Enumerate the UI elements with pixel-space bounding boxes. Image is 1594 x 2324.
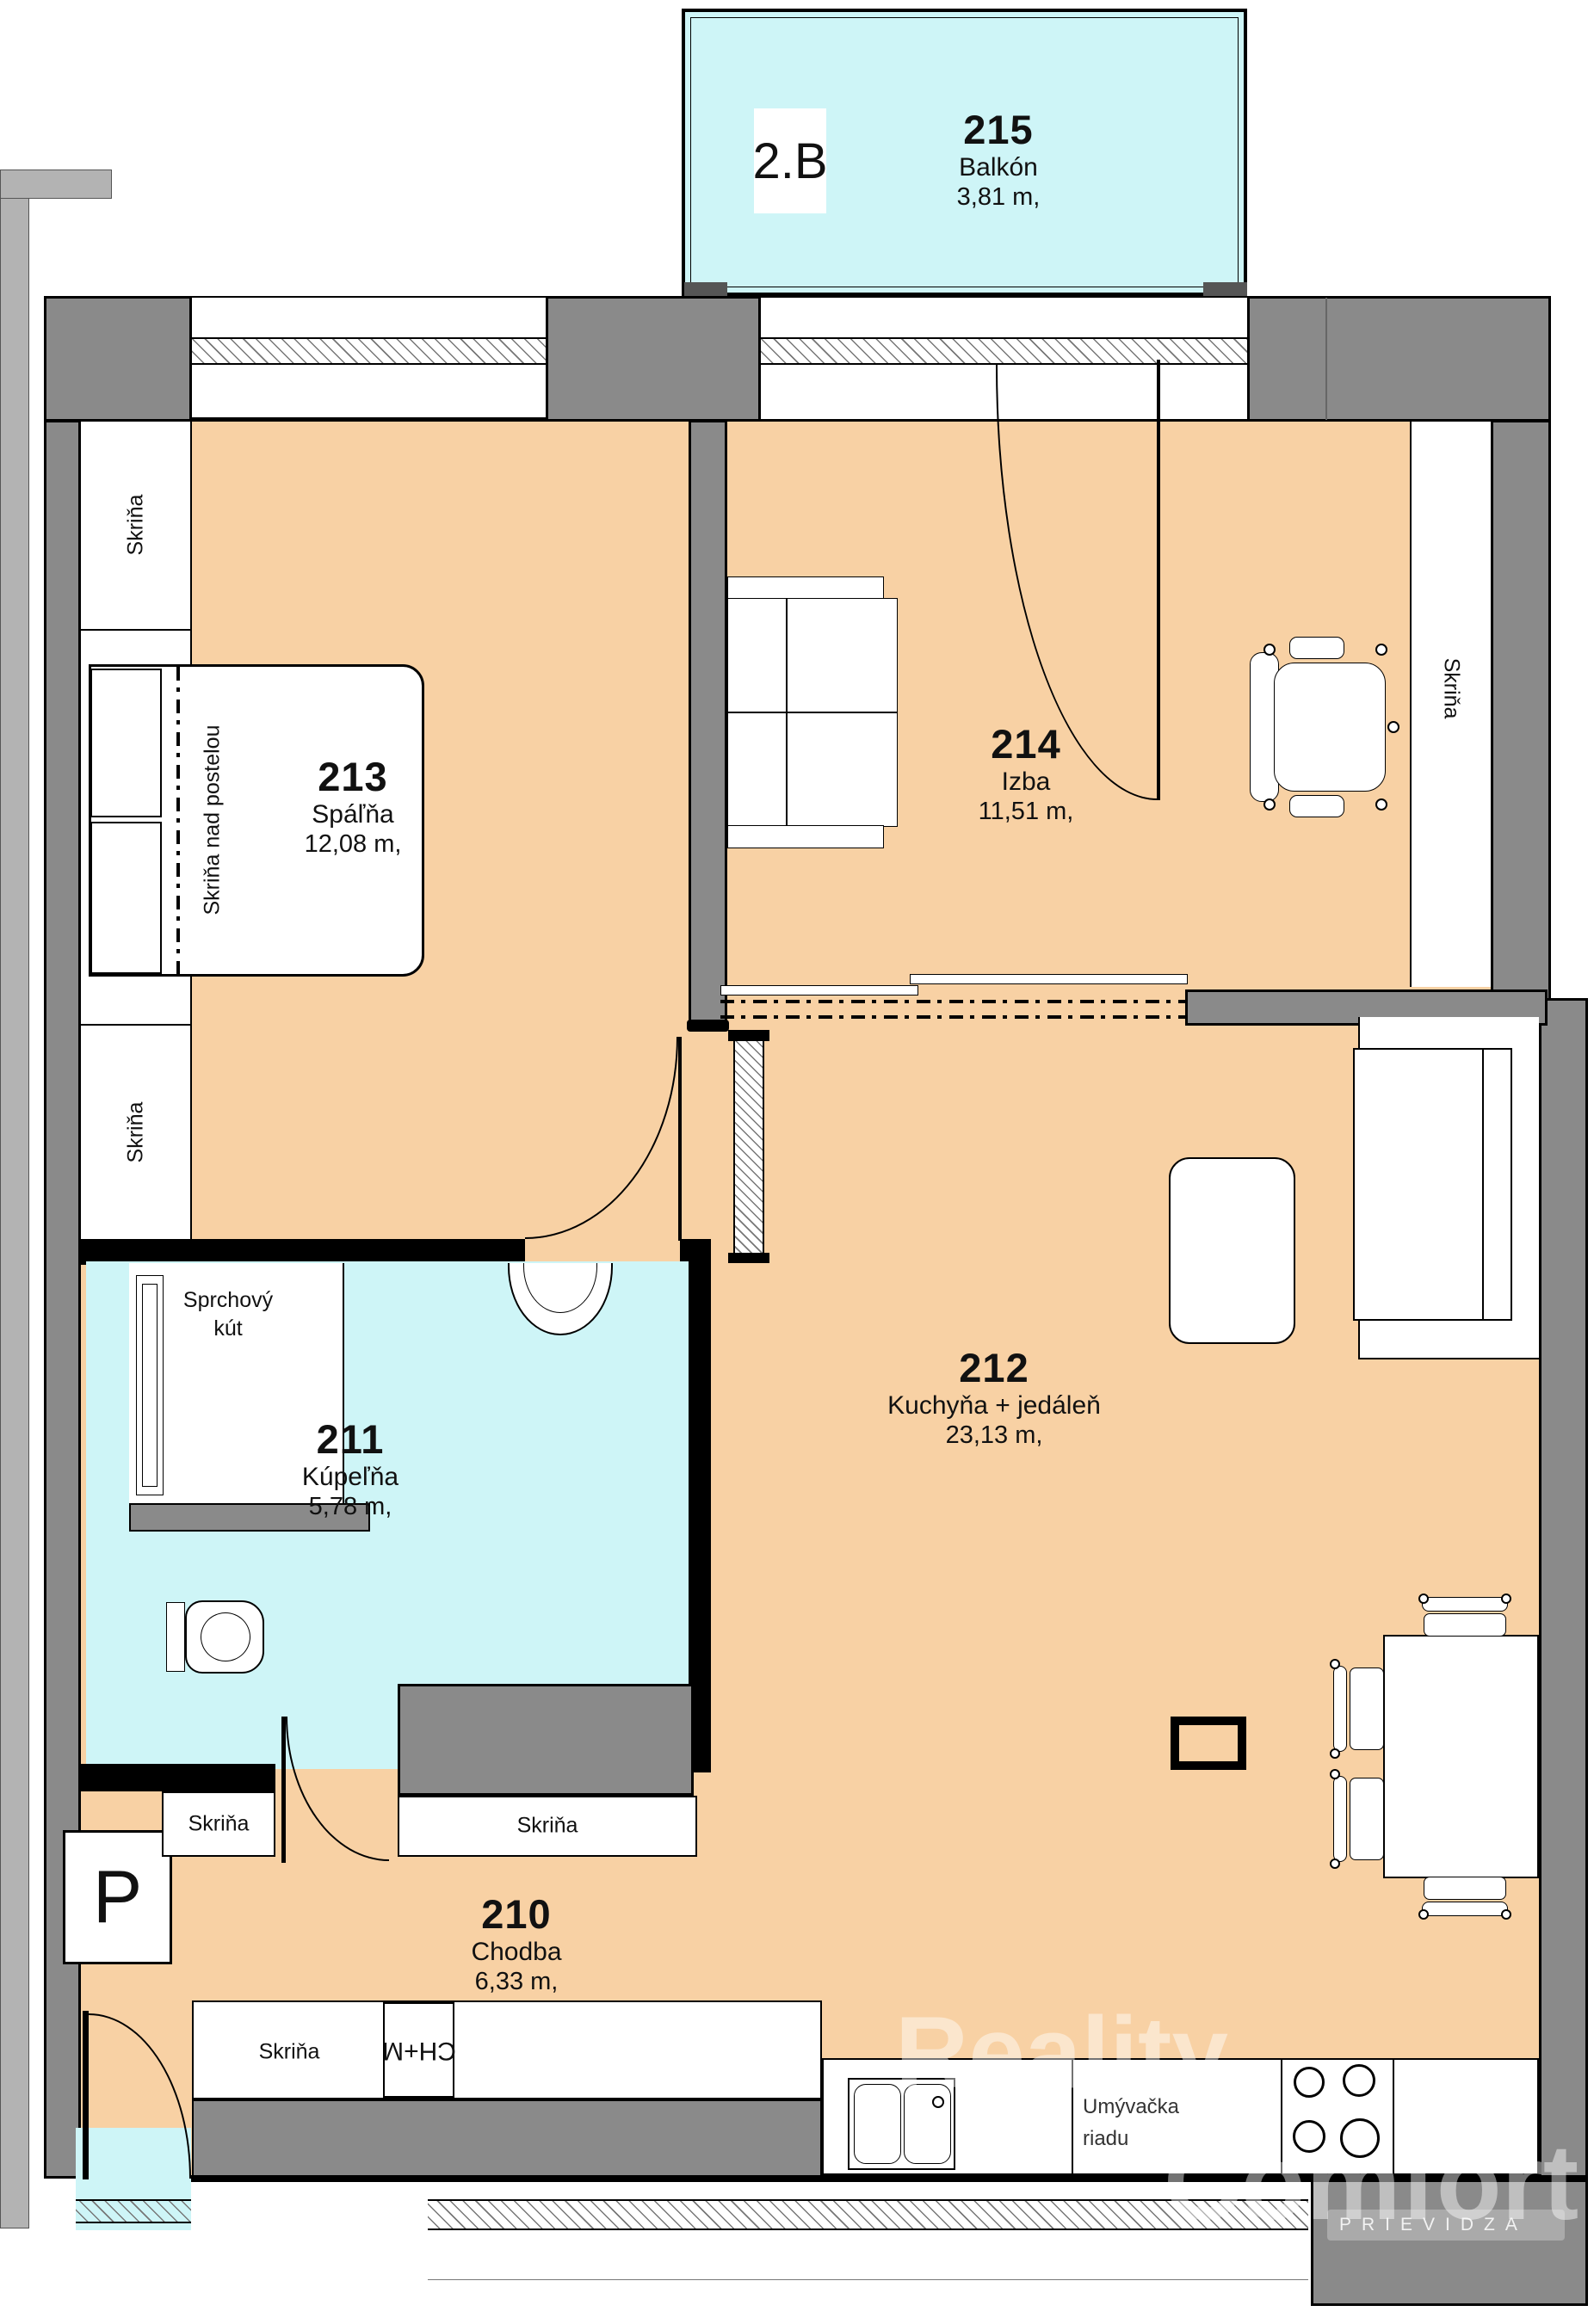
wall-block-bath-corner [398,1684,694,1796]
unit-label-box: 2.B [754,108,826,213]
chair-bottom-knob-r [1501,1909,1511,1920]
sliding-door-panel-2 [910,974,1188,984]
hall-counter-wardrobe-label: Skriňa [259,2040,320,2065]
wall-top-right-joint [1325,298,1327,420]
shower-tray-inner [142,1284,158,1487]
room-number-kuchyna: 212 [887,1347,1101,1389]
office-chair-seat [1274,663,1386,792]
kitchen-counter-line-3 [1393,2059,1394,2174]
bed-headboard-cabinet-1 [90,669,162,817]
unit-label: 2.B [752,133,827,190]
room-area-kuchyna: 23,13 m, [887,1422,1101,1448]
sliding-door-panel-1 [720,985,918,996]
room-label-izba: 214 Izba 11,51 m, [979,723,1074,824]
bedroom-door-leaf [678,1037,682,1241]
neighbour-wall-left [0,170,29,2228]
chair-bottom-seat [1424,1877,1506,1900]
stove-burner-2 [1343,2064,1375,2097]
hall-closet-left-label: Skriňa [188,1812,250,1837]
shower-label: Sprchový kút [164,1286,293,1342]
glazed-sidelight-cap-bottom [728,1253,769,1263]
room-name-balkon: Balkón [957,154,1041,182]
sofa212-backrest-line [1482,1050,1484,1319]
room-area-balkon: 3,81 m, [957,184,1041,210]
glazed-sidelight [733,1041,764,1256]
chair-top-back [1422,1597,1508,1612]
wall-right-upper [1491,420,1551,1024]
room-name-kuchyna: Kuchyňa + jedáleň [887,1392,1101,1420]
toilet-tank [166,1602,185,1672]
wall-bathroom-bottom-left [81,1764,275,1791]
room-area-izba: 11,51 m, [979,798,1074,824]
shower-label-line2: kút [164,1315,293,1343]
window-balcony-glass [761,337,1247,365]
room-number-spalna: 213 [305,755,402,798]
chair-left1-back [1333,1666,1347,1752]
room-name-chodba: Chodba [471,1939,561,1966]
sofa214-armrest-bottom [727,825,884,848]
toilet-bowl-inner [201,1612,250,1661]
chair-bottom-knob-l [1418,1909,1429,1920]
glazed-sidelight-cap-top [728,1030,769,1041]
chair-left2-knob-t [1330,1769,1340,1779]
stove-burner-4 [1340,2118,1380,2158]
chair-left2-seat [1350,1778,1384,1860]
bed-center-line [176,667,180,974]
room-name-kupelna: Kúpeľňa [302,1464,398,1491]
fridge-freezer-label: CH+M [382,2036,456,2065]
office-chair-armrest-bottom [1289,795,1344,817]
kitchen-sink-faucet [932,2096,944,2108]
chair-left1-seat [1350,1667,1384,1750]
office-chair-wheel-4 [1375,798,1387,811]
dishwasher-label-line2: riadu [1083,2123,1220,2154]
wall-divider-cap [687,1020,729,1032]
wall-right-lower [1539,998,1588,2179]
chair-left2-knob-b [1330,1859,1340,1869]
kitchen-counter-line-2 [1281,2059,1282,2174]
dining-table [1383,1635,1539,1878]
wall-divider-213-214 [689,420,727,1030]
office-chair-wheel-5 [1387,721,1399,733]
floor-shaft [1171,1717,1246,1770]
room-label-kuchyna: 212 Kuchyňa + jedáleň 23,13 m, [887,1347,1101,1448]
chair-top-knob-r [1501,1594,1511,1604]
window-bedroom-glass [192,337,546,365]
chair-top-seat [1424,1613,1506,1637]
bedroom-closet-line-top [81,629,192,631]
hall-closet-right-label: Skriňa [517,1814,578,1839]
room-area-spalna: 12,08 m, [305,831,402,857]
chair-left2-back [1333,1776,1347,1862]
bathroom-door-leaf [281,1717,286,1863]
wall-top-pier [546,296,761,422]
wall-top-right-corner [1247,296,1551,422]
room-number-chodba: 210 [471,1893,561,1935]
sofa214-seat-line-h [728,712,897,713]
entrance-threshold-hatch [76,2199,191,2223]
coffee-table [1169,1157,1295,1344]
office-chair-armrest-top [1289,637,1344,659]
room-label-chodba: 210 Chodba 6,33 m, [471,1893,561,1994]
room214-closet-label: Skriňa [1439,658,1464,719]
shower-label-line1: Sprchový [164,1286,293,1315]
room-label-spalna: 213 Spáľňa 12,08 m, [305,755,402,857]
wall-bottom-right-block [1311,2177,1588,2306]
bed-headboard-cabinet-2 [90,822,162,974]
kitchen-sink-basin-left [854,2084,901,2164]
floor-plan: 2.B 215 Balkón 3,81 m, Skriňa Skriňa Skr… [0,0,1594,2324]
office-chair-wheel-3 [1263,798,1276,811]
office-chair-wheel-2 [1375,644,1387,656]
sliding-door-track-2 [720,1015,1188,1019]
stove-burner-3 [1293,2120,1325,2153]
dishwasher-label: Umývačka riadu [1083,2091,1220,2154]
entrance-door-leaf [83,2011,89,2179]
bedroom-closet-top-label: Skriňa [124,495,149,556]
room-number-balkon: 215 [957,108,1041,151]
room-number-kupelna: 211 [302,1418,398,1460]
room-name-izba: Izba [979,768,1074,796]
kitchen-counter-line-1 [1072,2059,1073,2174]
bedroom-closet-line-bottom [81,1024,192,1026]
wall-bottom-line [191,2175,1588,2182]
room-name-spalna: Spáľňa [305,801,402,829]
room-area-kupelna: 5,78 m, [302,1494,398,1520]
wardrobe-over-bed-label: Skriňa nad postelou [201,725,226,915]
window-bottom-band [428,2182,1308,2280]
room-label-kupelna: 211 Kúpeľňa 5,78 m, [302,1418,398,1520]
wall-top-left-corner [44,296,192,422]
chair-top-knob-l [1418,1594,1429,1604]
sliding-door-track-1 [720,1000,1188,1003]
wall-under-hall-counter [192,2099,822,2177]
sofa214-armrest-top [727,576,884,600]
kitchen-sink-basin-right [904,2084,951,2164]
chair-bottom-back [1422,1902,1508,1916]
room-label-balkon: 215 Balkón 3,81 m, [957,108,1041,210]
stove-burner-1 [1294,2067,1325,2098]
chair-left1-knob-t [1330,1659,1340,1669]
washing-machine-label: P [93,1855,142,1940]
chair-left1-knob-b [1330,1748,1340,1759]
room-area-chodba: 6,33 m, [471,1969,561,1994]
window-bottom-glass [428,2199,1308,2230]
office-chair-wheel-1 [1263,644,1276,656]
room-number-izba: 214 [979,723,1074,765]
neighbour-wall-top-arm [0,170,112,199]
washing-machine-box: P [63,1830,172,1964]
bedroom-closet-bottom-label: Skriňa [124,1102,149,1163]
dishwasher-label-line1: Umývačka [1083,2091,1220,2123]
watermark-city-bar [1327,2210,1565,2241]
sofa212 [1353,1048,1512,1321]
